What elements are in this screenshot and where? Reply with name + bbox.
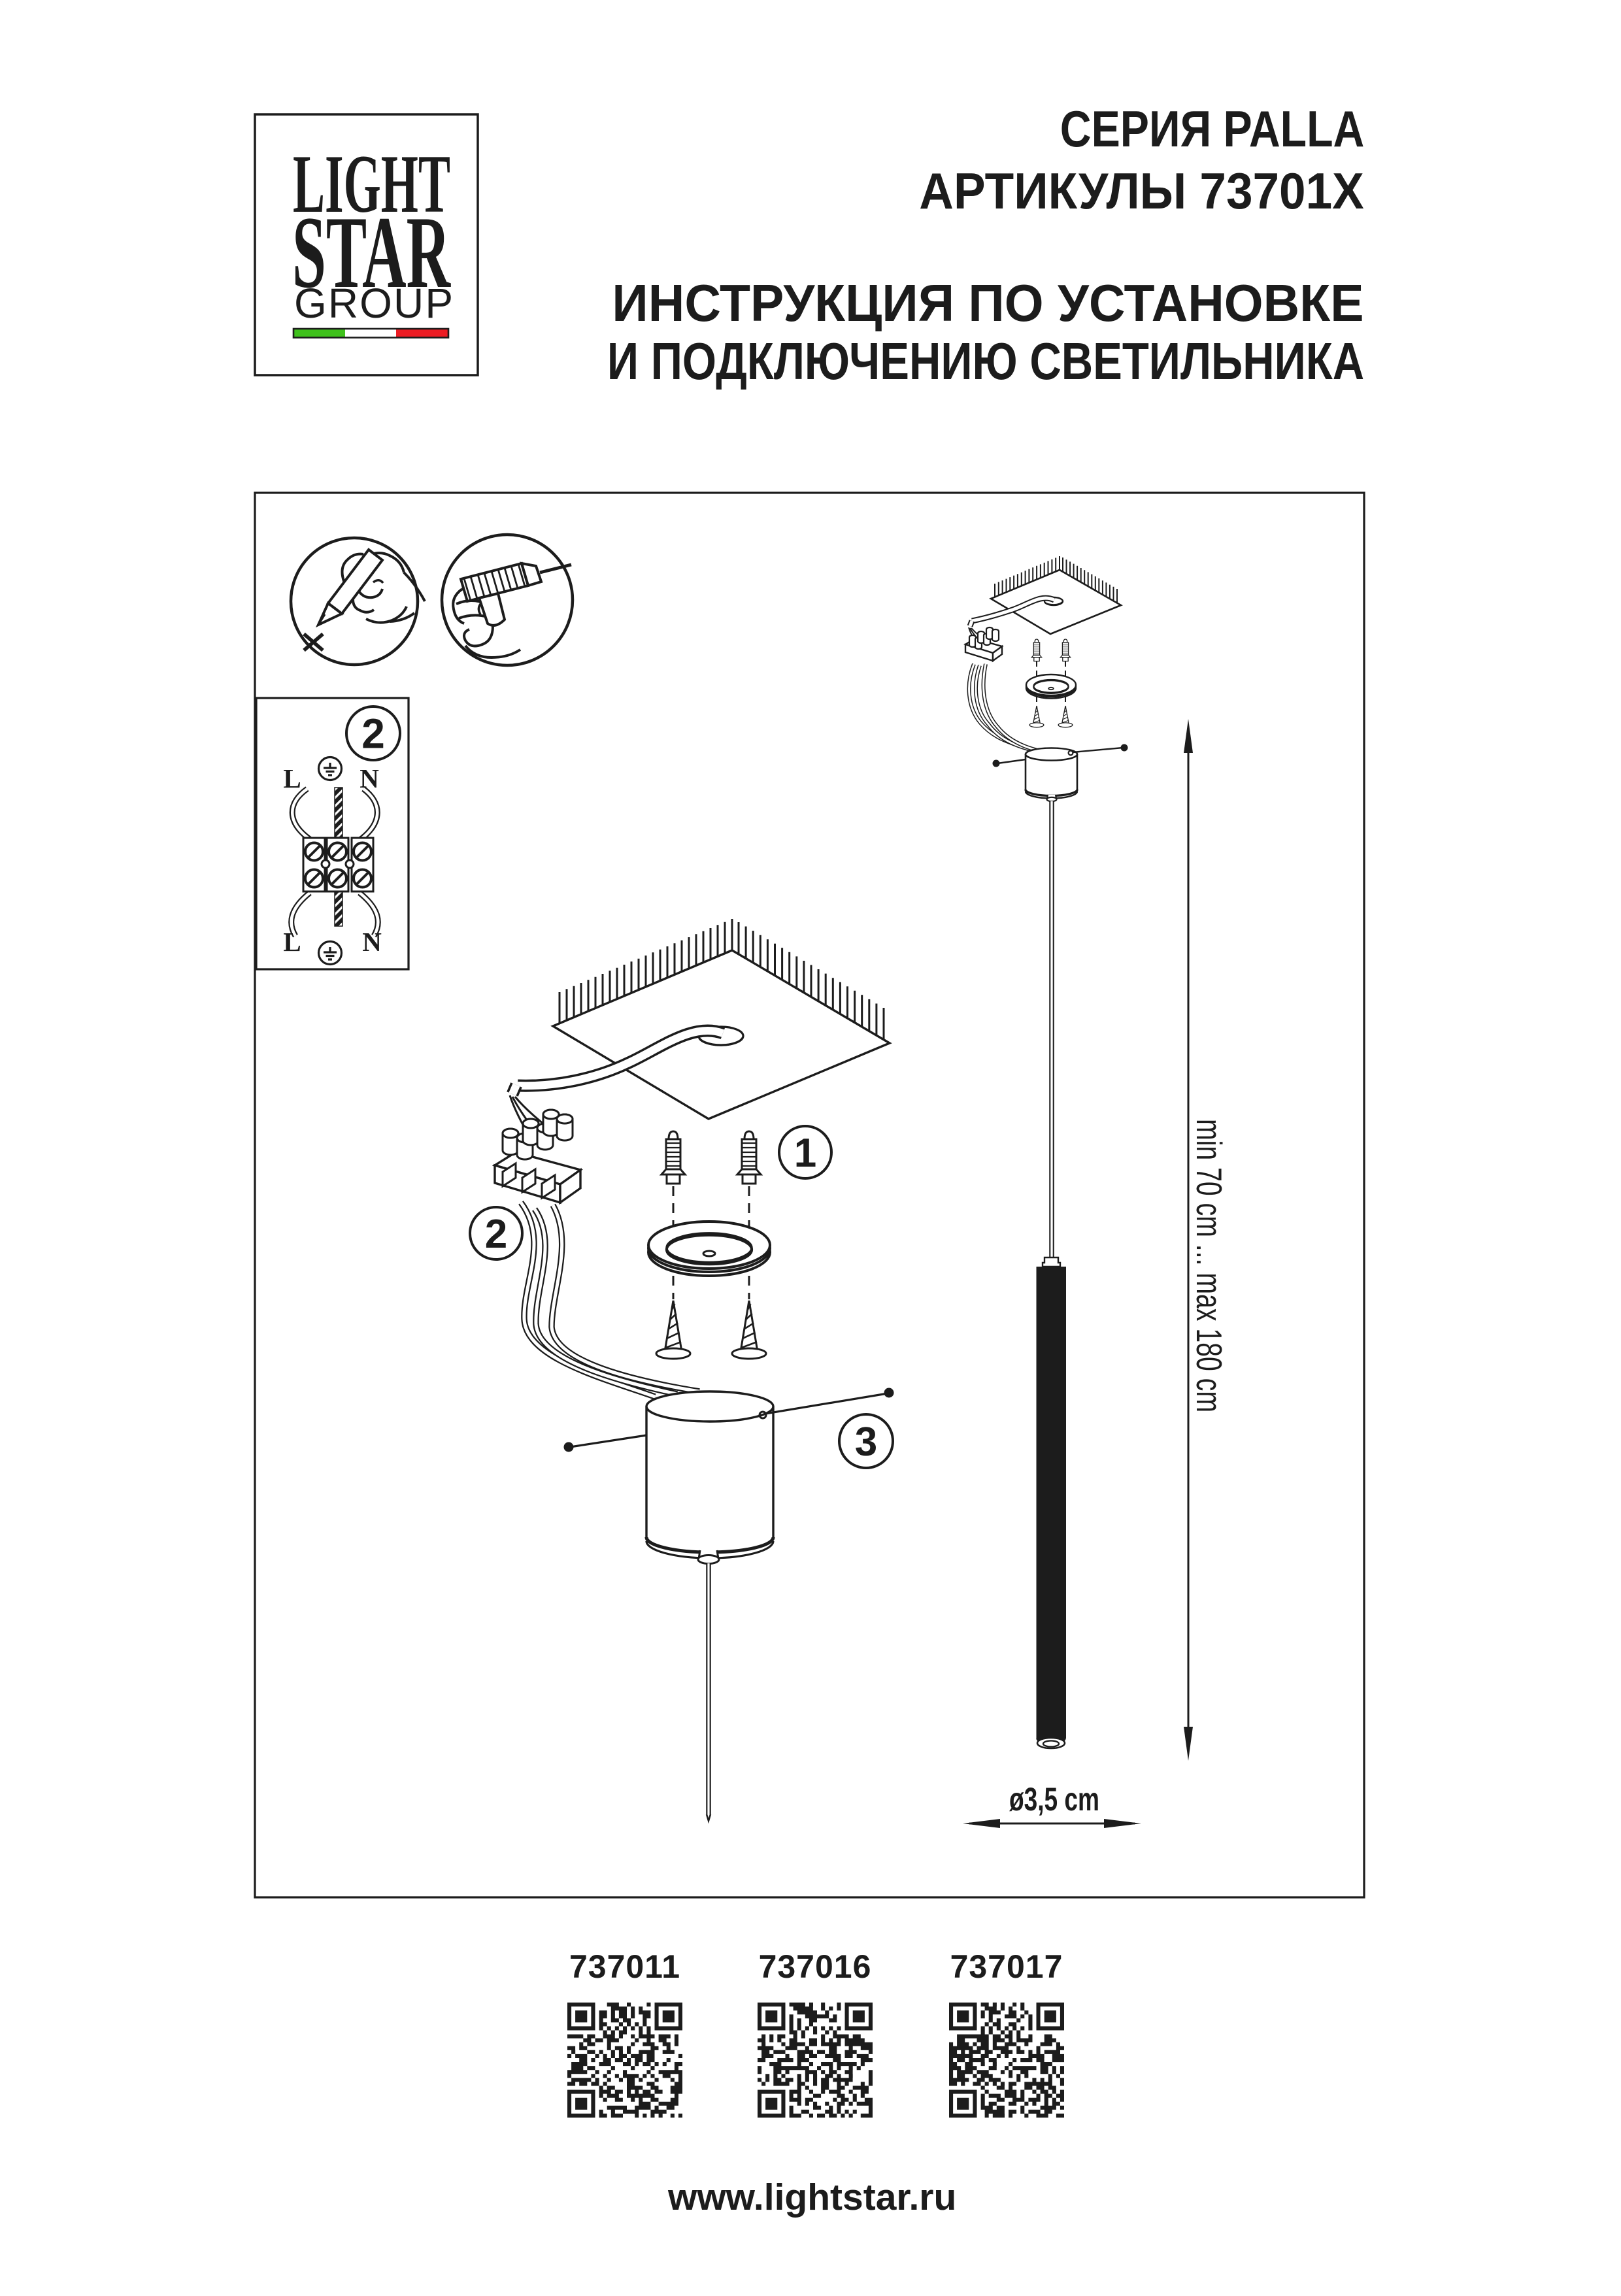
svg-text:N: N <box>359 763 379 793</box>
svg-text:GROUP: GROUP <box>294 280 453 327</box>
svg-text:ø3,5 cm: ø3,5 cm <box>1009 1781 1099 1818</box>
svg-text:N: N <box>362 927 382 957</box>
svg-text:1: 1 <box>794 1131 816 1176</box>
svg-text:2: 2 <box>485 1212 507 1257</box>
svg-text:737016: 737016 <box>759 1948 872 1985</box>
svg-text:L: L <box>283 763 301 793</box>
svg-text:737017: 737017 <box>950 1948 1063 1985</box>
svg-text:737011: 737011 <box>569 1948 680 1985</box>
svg-text:min 70 cm ... max 180 cm: min 70 cm ... max 180 cm <box>1189 1119 1229 1412</box>
svg-text:3: 3 <box>855 1420 877 1465</box>
svg-text:2: 2 <box>361 710 385 757</box>
svg-text:L: L <box>283 927 301 957</box>
